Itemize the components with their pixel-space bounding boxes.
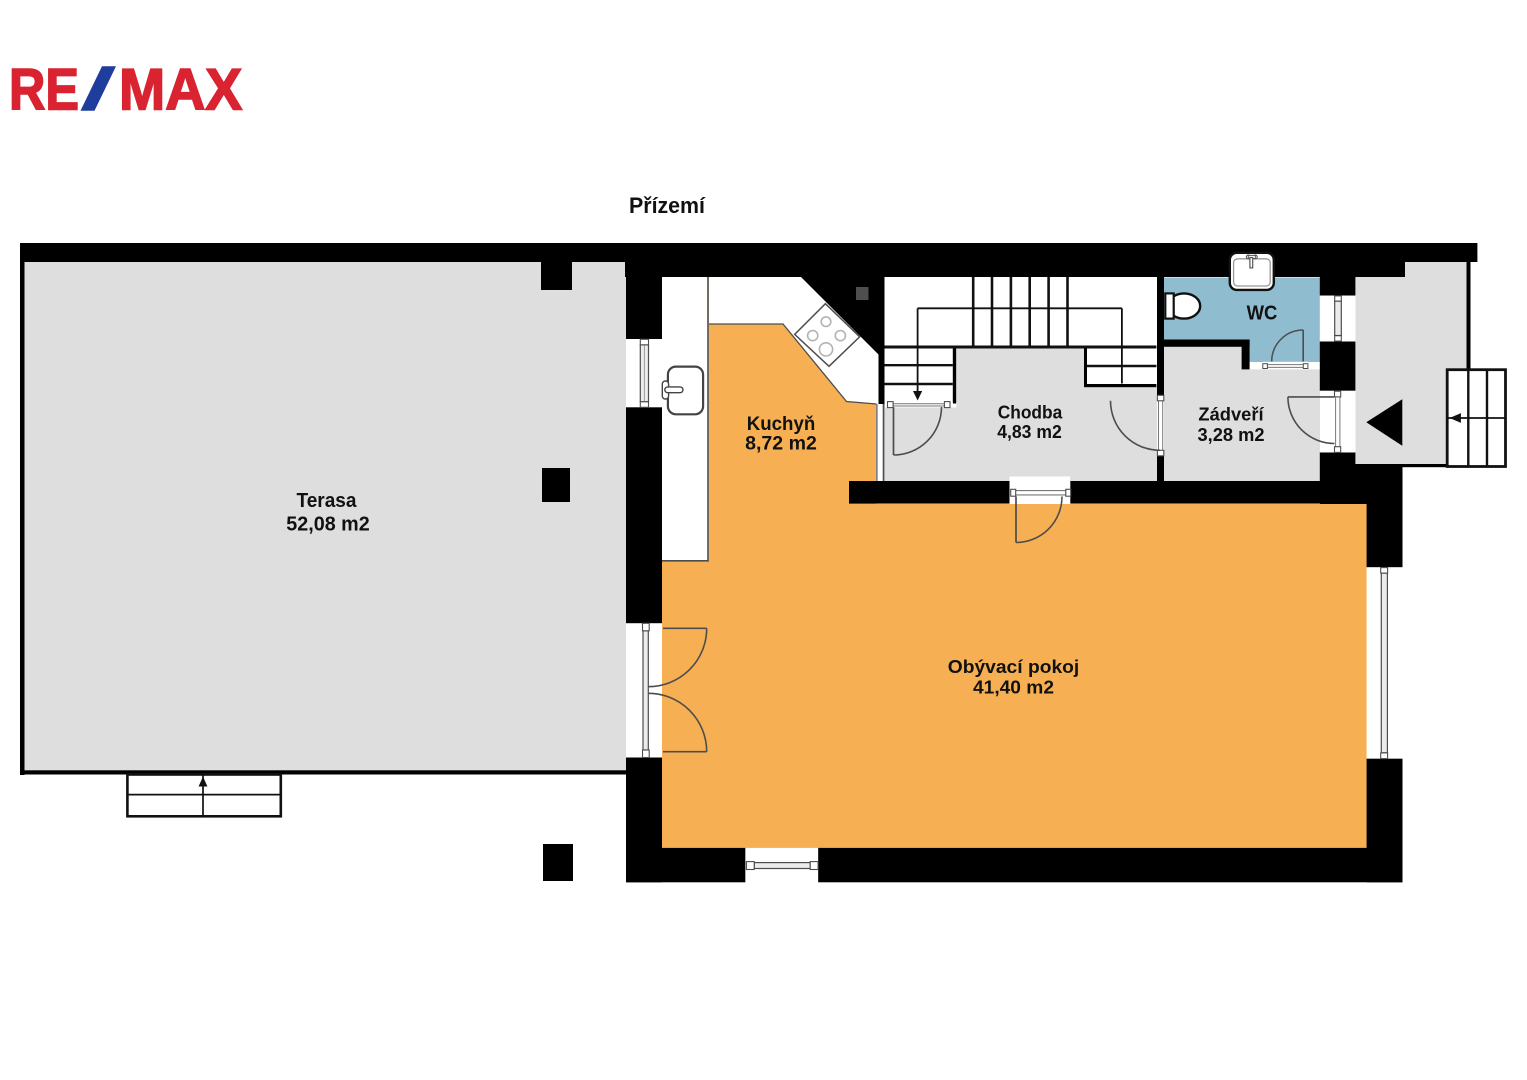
svg-text:52,08 m2: 52,08 m2 — [286, 514, 370, 536]
svg-text:RE: RE — [9, 58, 79, 123]
svg-text:Přízemí: Přízemí — [629, 193, 706, 218]
svg-text:Obývací pokoj: Obývací pokoj — [948, 656, 1080, 677]
svg-text:41,40 m2: 41,40 m2 — [973, 676, 1054, 697]
svg-text:3,28 m2: 3,28 m2 — [1198, 425, 1265, 445]
svg-text:MAX: MAX — [119, 58, 243, 123]
svg-text:WC: WC — [1247, 302, 1278, 324]
svg-text:Kuchyň: Kuchyň — [747, 413, 816, 435]
svg-text:Terasa: Terasa — [297, 490, 358, 512]
svg-text:Zádveří: Zádveří — [1198, 405, 1264, 425]
svg-text:4,83 m2: 4,83 m2 — [997, 421, 1062, 442]
svg-text:8,72 m2: 8,72 m2 — [745, 433, 817, 455]
svg-text:Chodba: Chodba — [998, 402, 1063, 423]
